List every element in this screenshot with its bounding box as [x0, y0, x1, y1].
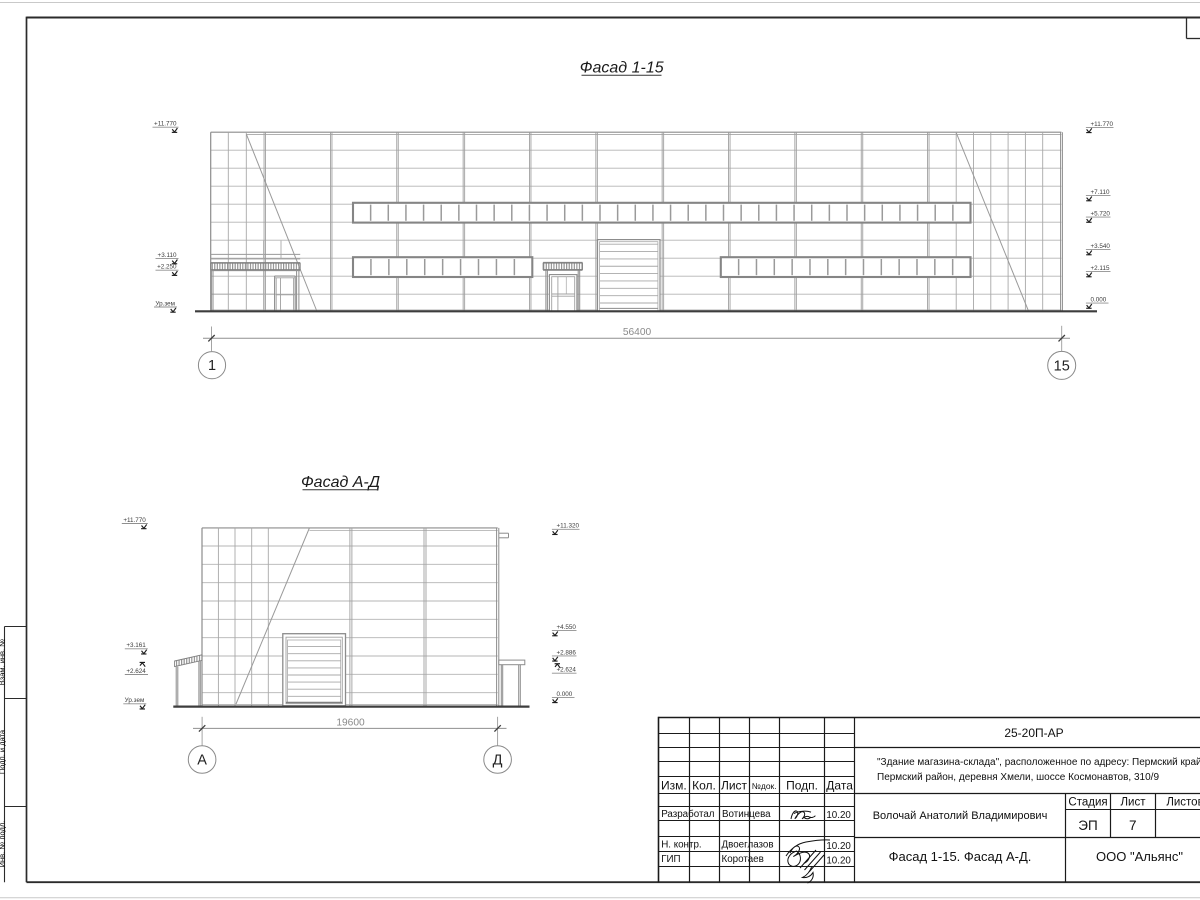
- svg-text:10.20: 10.20: [826, 855, 851, 866]
- svg-text:Лист: Лист: [721, 778, 748, 792]
- svg-text:+3.161: +3.161: [126, 642, 146, 649]
- svg-text:25-20П-АР: 25-20П-АР: [1004, 726, 1063, 740]
- svg-text:Разработал: Разработал: [661, 809, 715, 820]
- svg-text:15: 15: [1054, 358, 1070, 374]
- svg-text:Фасад 1-15: Фасад 1-15: [580, 59, 664, 76]
- svg-text:+2.115: +2.115: [1091, 265, 1110, 272]
- svg-text:Фасад 1-15. Фасад А-Д.: Фасад 1-15. Фасад А-Д.: [889, 849, 1032, 864]
- svg-text:Н. контр.: Н. контр.: [661, 839, 701, 850]
- svg-text:+2.250: +2.250: [157, 264, 177, 271]
- svg-text:0.000: 0.000: [1091, 297, 1107, 304]
- svg-text:Изм.: Изм.: [661, 778, 687, 792]
- svg-text:+7.110: +7.110: [1091, 189, 1110, 196]
- svg-text:Дата: Дата: [826, 778, 853, 792]
- svg-text:56400: 56400: [623, 327, 652, 338]
- svg-text:+4.550: +4.550: [557, 624, 577, 631]
- svg-text:Фасад А-Д: Фасад А-Д: [301, 474, 380, 491]
- svg-text:7: 7: [1129, 818, 1137, 833]
- svg-text:Подп. и дата: Подп. и дата: [0, 729, 6, 774]
- svg-text:10.20: 10.20: [826, 841, 851, 852]
- svg-text:+11.770: +11.770: [154, 121, 177, 128]
- svg-text:Двоеглазов: Двоеглазов: [722, 839, 774, 850]
- svg-text:Кол.: Кол.: [692, 778, 716, 792]
- svg-text:ГИП: ГИП: [661, 854, 680, 865]
- svg-text:+11.770: +11.770: [1091, 121, 1114, 128]
- svg-text:"Здание магазина-склада", расп: "Здание магазина-склада", расположенное …: [877, 757, 1200, 768]
- svg-text:А: А: [197, 753, 207, 769]
- svg-text:+2.624: +2.624: [557, 667, 577, 674]
- svg-text:№док.: №док.: [752, 781, 777, 791]
- svg-text:+11.770: +11.770: [123, 517, 146, 524]
- svg-text:1: 1: [208, 358, 216, 374]
- svg-text:Стадия: Стадия: [1068, 797, 1107, 809]
- svg-text:Д: Д: [493, 753, 503, 769]
- svg-text:Инв. № подл.: Инв. № подл.: [0, 821, 6, 868]
- svg-text:Волочай Анатолий Владимирович: Волочай Анатолий Владимирович: [873, 810, 1048, 822]
- svg-text:10.20: 10.20: [826, 810, 851, 821]
- svg-text:+5.720: +5.720: [1091, 211, 1111, 218]
- svg-text:+2.886: +2.886: [557, 649, 577, 656]
- svg-text:Ур.зем: Ур.зем: [125, 697, 145, 704]
- svg-text:Лист: Лист: [1121, 797, 1147, 809]
- svg-text:0.000: 0.000: [557, 691, 573, 698]
- svg-text:+11.320: +11.320: [557, 523, 580, 530]
- svg-text:Подп.: Подп.: [786, 778, 818, 792]
- svg-text:Листов: Листов: [1166, 797, 1200, 809]
- svg-text:Вотинцева: Вотинцева: [722, 809, 771, 820]
- svg-text:19600: 19600: [336, 718, 365, 729]
- svg-text:+3.540: +3.540: [1091, 243, 1111, 250]
- svg-text:Ур.зем: Ур.зем: [155, 300, 175, 307]
- svg-text:Взам. инв. №: Взам. инв. №: [0, 639, 6, 685]
- svg-text:ООО "Альянс": ООО "Альянс": [1096, 849, 1183, 864]
- svg-text:Пермский район, деревня Хмели,: Пермский район, деревня Хмели, шоссе Кос…: [877, 772, 1159, 783]
- svg-text:Коротаев: Коротаев: [722, 854, 764, 865]
- svg-text:+2.624: +2.624: [126, 668, 146, 675]
- svg-text:+3.110: +3.110: [158, 252, 177, 259]
- svg-text:ЭП: ЭП: [1078, 818, 1097, 833]
